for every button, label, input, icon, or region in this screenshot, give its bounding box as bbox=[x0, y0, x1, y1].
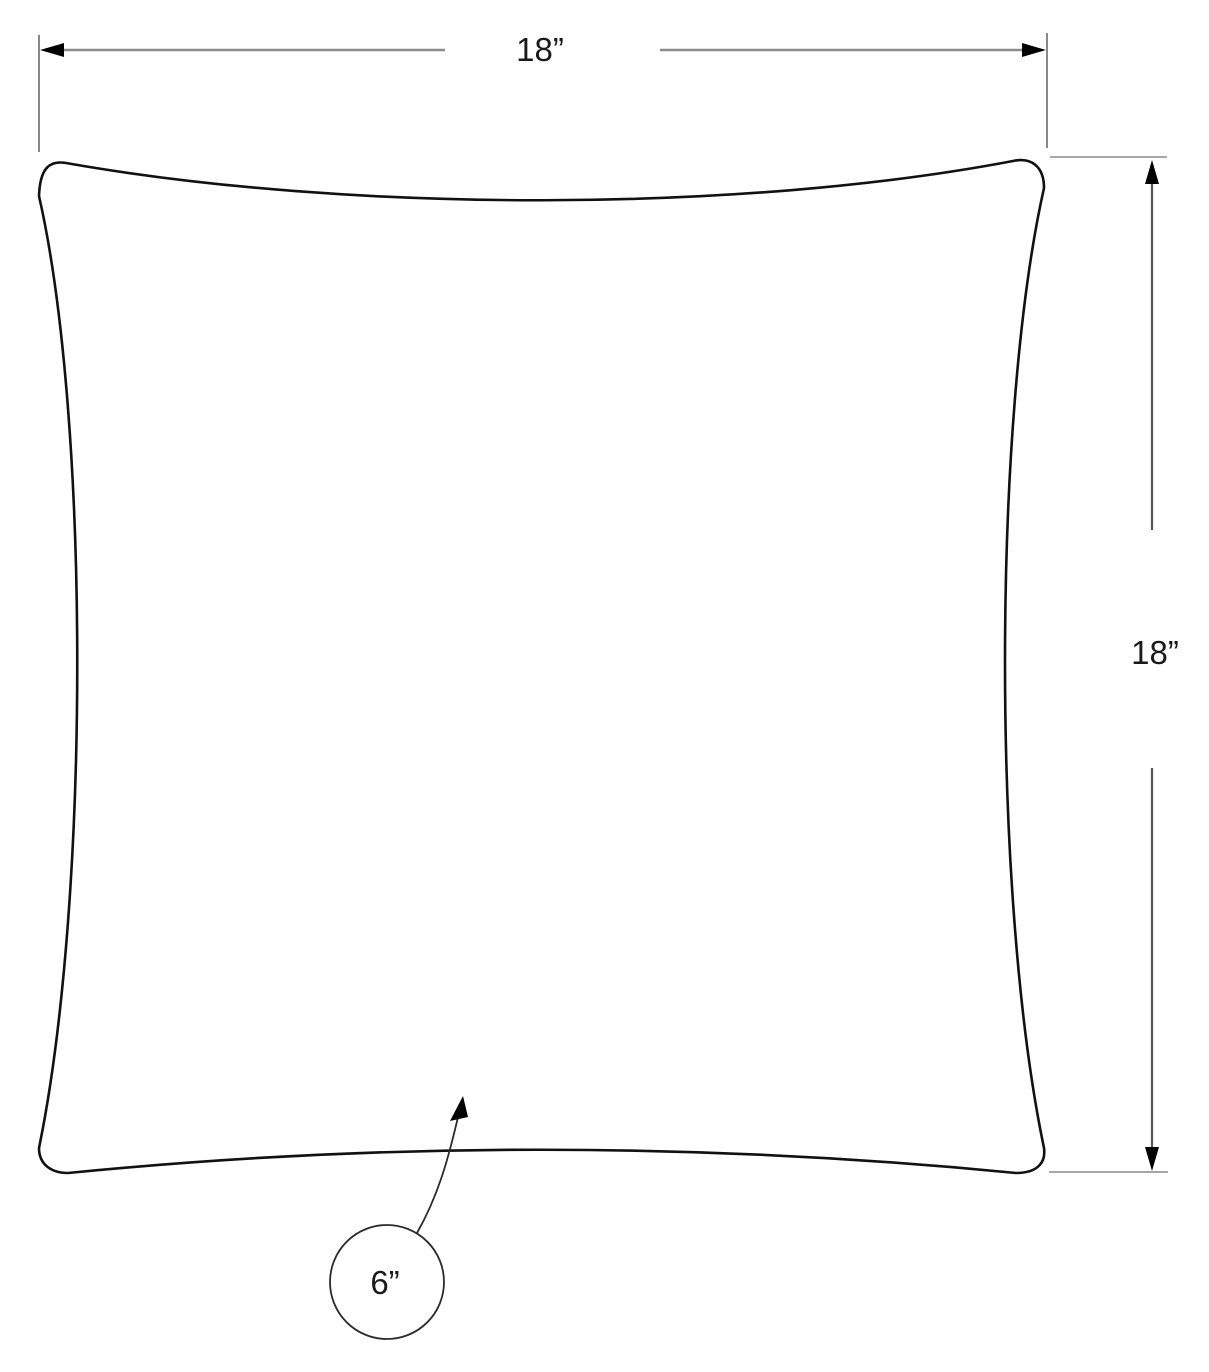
width-dimension: 18” bbox=[39, 31, 1047, 152]
callout-label: 6” bbox=[370, 1264, 399, 1301]
width-arrowhead-right-icon bbox=[1022, 43, 1046, 57]
width-arrowhead-left-icon bbox=[40, 43, 64, 57]
height-label: 18” bbox=[1131, 634, 1179, 671]
diagram-canvas: 18” 18” 6” bbox=[0, 0, 1209, 1372]
pillow-outline bbox=[39, 160, 1044, 1173]
height-dimension: 18” bbox=[1049, 157, 1179, 1172]
callout-leader-line bbox=[417, 1117, 458, 1233]
width-label: 18” bbox=[516, 31, 564, 68]
height-arrowhead-bottom-icon bbox=[1145, 1147, 1159, 1171]
thickness-callout: 6” bbox=[330, 1096, 468, 1339]
height-arrowhead-top-icon bbox=[1145, 160, 1159, 184]
pillow-dimension-diagram: 18” 18” 6” bbox=[0, 0, 1209, 1372]
callout-arrowhead-icon bbox=[450, 1096, 468, 1121]
